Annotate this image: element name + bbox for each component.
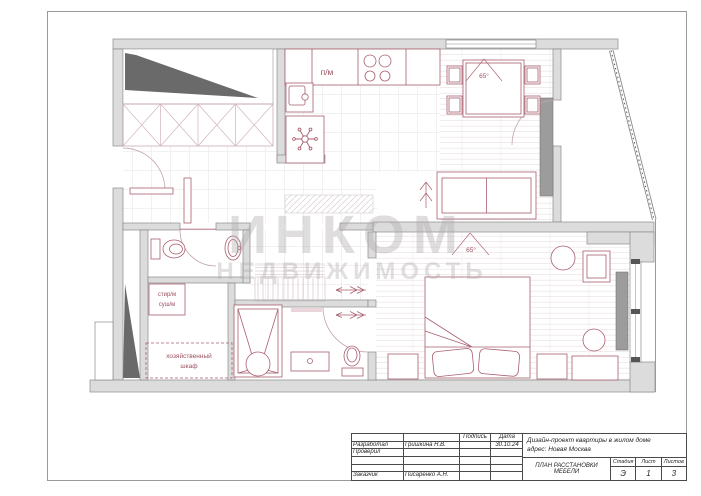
sheets-column: Листов 3 [662,458,686,480]
stage-value: Э [611,467,635,480]
stage-column: Стадия Э [611,458,636,480]
bath-toilet [342,346,363,376]
date-header: Дата [491,434,523,442]
stage-header: Стадия [611,458,635,467]
wc-door-arc [180,230,216,266]
bedroom-radiator-cabinet [616,272,628,350]
project-line1: Дизайн-проект квартиры в жилом доме [527,436,682,445]
sheets-value: 3 [662,467,686,480]
fridge [286,116,324,163]
watermark: ИНКОМ НЕДВИЖИМОСТЬ [216,205,487,285]
client-name: Писаренко А.Н. [404,472,460,480]
developed-name: Гришкина Н.В. [404,442,460,450]
dresser [572,356,618,380]
utility-label-line2: шкаф [180,363,198,370]
dining-table [463,60,524,117]
sheet-value: 1 [636,467,660,480]
pouf-top [551,246,575,270]
entry-wardrobe [123,104,273,146]
vanity [291,352,329,371]
floor-plan: п/м 65° 65° стир/м суш/м хозяйственный ш… [0,0,701,496]
hall-mirror [184,178,191,223]
bath-shelf [291,309,322,311]
bedroom-tv-label: 65° [466,246,476,254]
kitchen-counter [285,49,440,85]
watermark-subtitle-text: НЕДВИЖИМОСТЬ [216,258,487,285]
hall-console [130,188,173,194]
title-block-signatures: Подпись Дата Разработал Гришкина Н.В. 30… [352,434,523,480]
kitchen-sink [286,83,313,112]
tv-unit-living [540,98,553,196]
sheet-header: Лист [636,458,660,467]
utility-closet-outline [146,343,232,378]
utility-label-line1: хозяйственный [166,352,212,360]
washer-dryer-stack [149,284,185,315]
pouf-bottom [583,329,605,351]
washer-label: стир/м [158,292,176,298]
project-line2: адрес: Новая Москва [527,445,682,454]
drawing-title: ПЛАН РАССТАНОВКИ МЕБЕЛИ [523,458,611,480]
signature-header: Подпись [460,434,491,442]
pillow-left [432,348,474,377]
dishwasher-label: п/м [321,67,334,77]
shower [234,305,282,377]
structural-wedge-bottom [123,284,140,378]
watermark-logo-text: ИНКОМ [228,205,466,265]
date-value: 30.10.24 [491,442,523,450]
title-block-info: Дизайн-проект квартиры в жилом доме адре… [523,434,686,480]
developed-label: Разработал [352,442,404,450]
nightstand-left [388,354,418,379]
wc-toilet [151,239,185,259]
drawing-sheet: п/м 65° 65° стир/м суш/м хозяйственный ш… [0,0,701,496]
bedroom-chair [583,251,610,282]
client-label: Заказчик [352,472,404,480]
sheet-column: Лист 1 [636,458,661,480]
bed [425,277,530,378]
title-block: Подпись Дата Разработал Гришкина Н.В. 30… [351,433,687,481]
checked-label: Проверил [352,449,404,457]
pillow-right [478,348,520,376]
nightstand-right [537,354,567,379]
sheets-header: Листов [662,458,686,467]
living-tv-label: 65° [479,72,489,80]
project-description: Дизайн-проект квартиры в жилом доме адре… [523,434,686,458]
dryer-label: суш/м [159,302,176,308]
